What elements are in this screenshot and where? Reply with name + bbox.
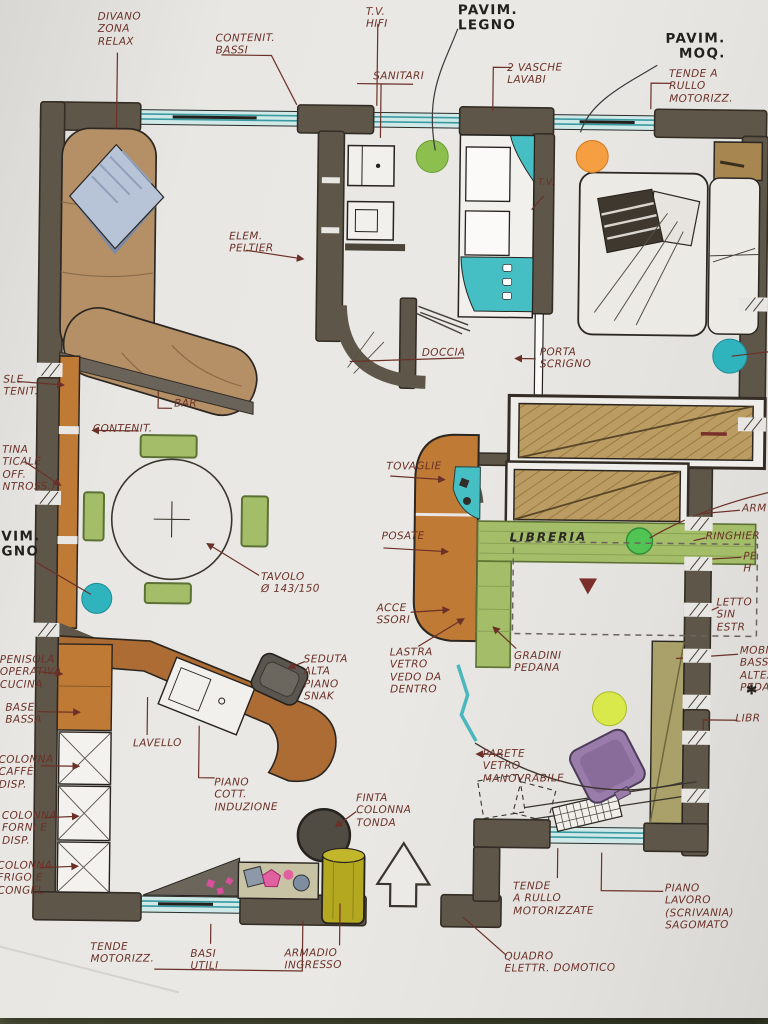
dot-green bbox=[416, 140, 448, 172]
toilet bbox=[348, 145, 394, 186]
label-colonna-caffe: COLONNA CAFFÈ DISP. bbox=[0, 753, 54, 791]
kitchen-sink bbox=[158, 657, 255, 735]
label-divano-zona-relax: DIVANO ZONA RELAX bbox=[98, 10, 142, 48]
label-tovaglie: TOVAGLIE bbox=[386, 460, 441, 473]
label-piano-lavoro: PIANO LAVORO (SCRIVANIA) SAGOMATO bbox=[665, 882, 763, 932]
label-tende-rullo-top: TENDE A RULLO MOTORIZZ. bbox=[669, 67, 733, 105]
label-gradini-pedana: GRADINI PEDANA bbox=[514, 650, 562, 675]
label-colonna-frigo: COLONNA FRIGO E CONGEL bbox=[0, 859, 53, 897]
dot-teal-right bbox=[713, 339, 747, 373]
ramp bbox=[143, 857, 239, 896]
label-lavello: LAVELLO bbox=[133, 737, 182, 750]
label-lastra-vetro: LASTRA VETRO VEDO DA DENTRO bbox=[390, 646, 442, 696]
kitchen bbox=[53, 628, 337, 895]
label-cut-letto: LETTO SIN ESTR bbox=[716, 596, 766, 634]
sketch-paper: DIVANO ZONA RELAX CONTENIT. BASSI T.V. H… bbox=[0, 0, 768, 1018]
label-doccia: DOCCIA bbox=[422, 346, 466, 359]
label-tavolo-diametro: TAVOLO Ø 143/150 bbox=[261, 571, 320, 596]
label-contenit: CONTENIT. bbox=[93, 422, 153, 435]
north-arrow-icon bbox=[377, 843, 430, 907]
floor-plan-drawing bbox=[0, 0, 768, 1024]
bidet bbox=[347, 201, 393, 240]
label-piano-cottura: PIANO COTT. INDUZIONE bbox=[214, 776, 278, 814]
green-dot bbox=[626, 528, 652, 554]
label-seduta-alta: SEDUTA ALTA PIANO SNAK bbox=[304, 653, 349, 703]
label-quadro-elettrico: QUADRO ELETTR. DOMOTICO bbox=[504, 950, 615, 976]
label-pavim-moq: PAVIM. MOQ. bbox=[655, 31, 725, 61]
label-libreria: LIBRERIA bbox=[509, 530, 587, 545]
bathroom bbox=[319, 133, 546, 426]
steps bbox=[476, 561, 511, 667]
label-cut-pedana: PE H bbox=[743, 550, 757, 575]
label-colonna-forni: COLONNA FORNI E DISP. bbox=[2, 809, 57, 847]
label-tende-rullo-bottom: TENDE A RULLO MOTORIZZATE bbox=[513, 880, 594, 918]
dot-lime bbox=[592, 691, 626, 725]
dot-orange bbox=[576, 140, 608, 172]
photo-of-floor-plan: DIVANO ZONA RELAX CONTENIT. BASSI T.V. H… bbox=[0, 0, 768, 1024]
label-2-vasche-lavabi: 2 VASCHE LAVABI bbox=[507, 61, 563, 86]
base-cabinet bbox=[57, 644, 112, 731]
sink-2 bbox=[465, 211, 510, 256]
label-cut-pavim-legno: VIM. GNO bbox=[1, 529, 40, 559]
label-contenit-bassi: CONTENIT. BASSI bbox=[215, 32, 275, 57]
label-finta-colonna: FINTA COLONNA TONDA bbox=[356, 792, 411, 830]
label-porta-scrigno: PORTA SCRIGNO bbox=[540, 346, 592, 371]
label-accessori: ACCE SSORI bbox=[376, 602, 410, 627]
sofa bbox=[55, 128, 268, 424]
asterisk-icon: ✱ bbox=[746, 682, 758, 699]
sink-1 bbox=[466, 147, 511, 202]
label-armadio-ingresso: ARMADIO INGRESSO bbox=[284, 947, 342, 972]
dot-teal-left bbox=[82, 583, 112, 613]
label-basi-utili: BASI UTILI bbox=[190, 948, 218, 973]
label-cut-console: SLE TENIT. bbox=[3, 373, 38, 398]
dining-area bbox=[83, 434, 269, 604]
label-tv-hifi: T.V. HIFI bbox=[366, 6, 388, 31]
label-tende-motoriz: TENDE MOTORIZZ. bbox=[90, 940, 154, 965]
bedroom bbox=[578, 140, 762, 336]
label-penisola: PENISOLA OPERATIVA CUCINA bbox=[0, 653, 62, 691]
label-cut-vetrina: TINA TICALE OFF. NTROSS.) bbox=[2, 443, 56, 493]
label-elem-peltier: ELEM. PELTIER bbox=[229, 230, 274, 255]
label-cut-libreria: LIBR bbox=[735, 712, 760, 725]
label-parete-vetro: PARETE VETRO MANOVRABILE bbox=[483, 747, 565, 785]
label-pavim-legno: PAVIM. LEGNO bbox=[458, 3, 518, 33]
floor-plan: DIVANO ZONA RELAX CONTENIT. BASSI T.V. H… bbox=[0, 0, 768, 1024]
label-cut-armadio: ARM bbox=[742, 502, 767, 515]
label-bar: BAR bbox=[174, 397, 197, 410]
label-tv-small: T.V. bbox=[538, 178, 555, 189]
label-sanitari: SANITARI bbox=[373, 70, 424, 83]
label-base-bassa: BASE BASSA bbox=[5, 701, 42, 726]
movable-glass-wall bbox=[457, 665, 477, 741]
label-cut-ringhiera: RINGHIER bbox=[706, 530, 761, 543]
label-posate: POSATE bbox=[382, 530, 425, 543]
